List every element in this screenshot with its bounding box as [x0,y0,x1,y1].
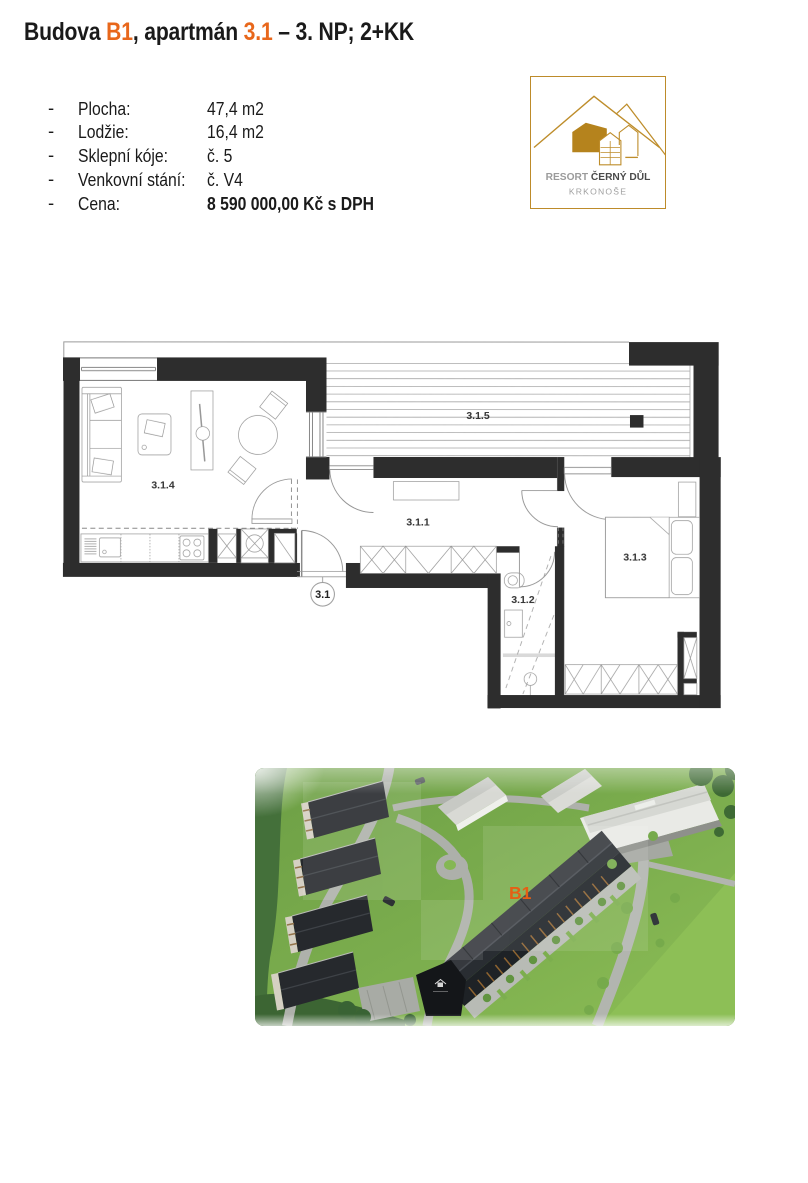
svg-text:3.1.3: 3.1.3 [623,552,647,564]
svg-text:B1: B1 [509,883,532,903]
svg-text:3.1: 3.1 [315,589,330,601]
svg-text:3.1.5: 3.1.5 [466,410,490,422]
svg-text:3.1.2: 3.1.2 [511,594,535,606]
svg-text:3.1.4: 3.1.4 [151,479,175,491]
svg-text:3.1.1: 3.1.1 [406,517,430,529]
